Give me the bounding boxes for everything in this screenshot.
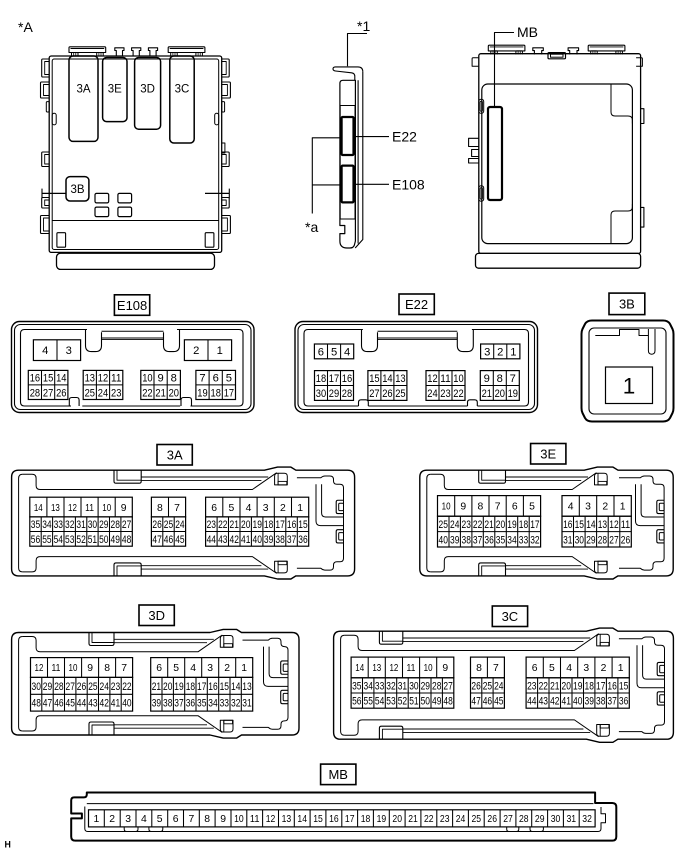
svg-text:41: 41 (111, 698, 120, 710)
svg-text:13: 13 (395, 373, 405, 385)
svg-text:39: 39 (450, 534, 459, 546)
svg-text:7: 7 (510, 373, 516, 385)
svg-text:39: 39 (152, 698, 161, 710)
svg-text:5: 5 (331, 346, 337, 358)
svg-text:17: 17 (224, 387, 234, 399)
svg-text:53: 53 (386, 696, 395, 708)
svg-text:4: 4 (246, 503, 252, 514)
svg-text:36: 36 (484, 534, 493, 546)
svg-text:5: 5 (549, 663, 555, 674)
svg-text:36: 36 (619, 696, 628, 708)
svg-text:3B: 3B (619, 297, 635, 312)
svg-text:6: 6 (318, 346, 324, 358)
svg-text:40: 40 (439, 534, 448, 546)
svg-text:28: 28 (342, 388, 352, 400)
svg-text:3: 3 (263, 503, 269, 514)
svg-text:18: 18 (519, 519, 528, 531)
svg-text:19: 19 (507, 519, 516, 531)
svg-text:22: 22 (218, 519, 227, 531)
svg-text:18: 18 (585, 680, 594, 692)
svg-text:MB: MB (517, 24, 538, 40)
svg-text:17: 17 (197, 681, 206, 693)
svg-text:3C: 3C (502, 609, 519, 624)
svg-text:13: 13 (242, 681, 251, 693)
svg-text:5: 5 (529, 502, 535, 513)
svg-text:15: 15 (298, 519, 307, 531)
svg-text:3: 3 (125, 814, 131, 825)
svg-text:30: 30 (316, 388, 326, 400)
svg-text:44: 44 (77, 698, 86, 710)
svg-text:39: 39 (585, 696, 594, 708)
svg-text:45: 45 (494, 696, 503, 708)
svg-text:16: 16 (563, 519, 572, 531)
svg-text:32: 32 (65, 519, 74, 531)
svg-text:8: 8 (204, 814, 210, 825)
svg-text:2: 2 (224, 663, 230, 674)
svg-text:8: 8 (478, 502, 484, 513)
svg-text:55: 55 (42, 534, 51, 546)
svg-text:*A: *A (18, 19, 33, 35)
svg-text:13: 13 (85, 373, 95, 385)
svg-text:5: 5 (157, 814, 163, 825)
svg-text:47: 47 (471, 696, 480, 708)
svg-text:20: 20 (163, 681, 172, 693)
svg-text:17: 17 (275, 519, 284, 531)
svg-text:54: 54 (54, 534, 63, 546)
svg-text:38: 38 (163, 698, 172, 710)
svg-text:27: 27 (609, 534, 618, 546)
svg-text:22: 22 (424, 814, 434, 825)
svg-text:21: 21 (230, 519, 239, 531)
svg-text:18: 18 (211, 387, 221, 399)
svg-text:1: 1 (510, 346, 516, 358)
svg-text:42: 42 (100, 698, 109, 710)
svg-text:50: 50 (99, 534, 108, 546)
svg-text:24: 24 (456, 814, 466, 825)
svg-text:21: 21 (550, 680, 559, 692)
svg-text:46: 46 (164, 534, 173, 546)
svg-text:10: 10 (453, 373, 463, 385)
svg-text:3B: 3B (70, 184, 84, 196)
svg-text:3: 3 (585, 502, 591, 513)
svg-text:20: 20 (496, 519, 505, 531)
svg-text:6: 6 (532, 663, 538, 674)
svg-text:10: 10 (442, 502, 451, 513)
svg-text:18: 18 (316, 373, 326, 385)
svg-text:12: 12 (266, 814, 276, 825)
svg-text:2: 2 (497, 346, 503, 358)
svg-text:12: 12 (98, 373, 108, 385)
svg-text:7: 7 (189, 814, 195, 825)
svg-text:13: 13 (282, 814, 292, 825)
svg-text:10: 10 (424, 663, 433, 674)
svg-text:44: 44 (207, 534, 216, 546)
svg-text:2: 2 (280, 503, 286, 514)
svg-text:24: 24 (98, 387, 108, 399)
svg-text:29: 29 (586, 534, 595, 546)
svg-text:17: 17 (329, 373, 339, 385)
svg-text:38: 38 (596, 696, 605, 708)
svg-text:3D: 3D (148, 608, 165, 623)
svg-text:3E: 3E (108, 83, 122, 95)
svg-text:38: 38 (275, 534, 284, 546)
svg-text:10: 10 (142, 373, 152, 385)
svg-text:24: 24 (100, 681, 109, 693)
svg-text:8: 8 (104, 663, 110, 674)
svg-text:E22: E22 (392, 129, 417, 145)
svg-text:21: 21 (484, 519, 493, 531)
svg-text:33: 33 (519, 534, 528, 546)
svg-text:45: 45 (66, 698, 75, 710)
svg-text:45: 45 (175, 534, 184, 546)
svg-text:5: 5 (229, 503, 235, 514)
svg-text:28: 28 (30, 387, 40, 399)
svg-text:7: 7 (495, 502, 501, 513)
svg-text:26: 26 (471, 680, 480, 692)
svg-text:30: 30 (551, 814, 561, 825)
svg-text:56: 56 (352, 696, 361, 708)
svg-text:3A: 3A (167, 447, 183, 462)
svg-text:13: 13 (598, 519, 607, 531)
svg-text:29: 29 (421, 680, 430, 692)
svg-text:24: 24 (427, 388, 437, 400)
svg-text:3D: 3D (140, 83, 155, 95)
svg-text:46: 46 (483, 696, 492, 708)
svg-text:34: 34 (364, 680, 373, 692)
svg-text:33: 33 (220, 698, 229, 710)
svg-text:40: 40 (573, 696, 582, 708)
svg-text:33: 33 (375, 680, 384, 692)
svg-text:39: 39 (264, 534, 273, 546)
svg-text:34: 34 (507, 534, 516, 546)
svg-text:1: 1 (623, 374, 636, 399)
svg-text:7: 7 (493, 663, 499, 674)
svg-text:35: 35 (31, 519, 40, 531)
svg-text:43: 43 (88, 698, 97, 710)
svg-text:41: 41 (241, 534, 250, 546)
svg-text:3: 3 (484, 346, 490, 358)
svg-text:34: 34 (42, 519, 51, 531)
svg-text:12: 12 (609, 519, 618, 531)
svg-text:27: 27 (369, 388, 379, 400)
svg-text:26: 26 (382, 388, 392, 400)
svg-text:32: 32 (530, 534, 539, 546)
svg-text:43: 43 (539, 696, 548, 708)
svg-text:42: 42 (230, 534, 239, 546)
svg-text:30: 30 (88, 519, 97, 531)
svg-text:21: 21 (155, 387, 165, 399)
svg-text:28: 28 (54, 681, 63, 693)
svg-text:4: 4 (568, 502, 574, 513)
svg-text:27: 27 (43, 387, 53, 399)
svg-text:23: 23 (111, 387, 121, 399)
svg-text:28: 28 (519, 814, 529, 825)
svg-text:31: 31 (563, 534, 572, 546)
svg-text:53: 53 (65, 534, 74, 546)
svg-text:18: 18 (186, 681, 195, 693)
svg-text:E108: E108 (392, 176, 425, 192)
svg-text:13: 13 (51, 503, 60, 514)
svg-text:3: 3 (583, 663, 589, 674)
svg-text:24: 24 (494, 680, 503, 692)
svg-text:28: 28 (598, 534, 607, 546)
svg-text:25: 25 (472, 814, 482, 825)
svg-text:26: 26 (621, 534, 630, 546)
svg-text:H: H (5, 840, 11, 850)
svg-text:40: 40 (122, 698, 131, 710)
svg-text:8: 8 (171, 373, 177, 385)
svg-text:9: 9 (157, 373, 163, 385)
svg-text:19: 19 (508, 388, 518, 400)
svg-text:27: 27 (443, 680, 452, 692)
svg-text:2: 2 (193, 345, 199, 357)
svg-text:9: 9 (87, 663, 93, 674)
svg-text:37: 37 (607, 696, 616, 708)
svg-text:18: 18 (264, 519, 273, 531)
svg-text:18: 18 (361, 814, 371, 825)
svg-text:3C: 3C (175, 83, 190, 95)
svg-text:5: 5 (226, 373, 232, 385)
svg-text:41: 41 (562, 696, 571, 708)
svg-text:17: 17 (530, 519, 539, 531)
svg-text:37: 37 (287, 534, 296, 546)
svg-text:32: 32 (582, 814, 592, 825)
svg-text:25: 25 (395, 388, 405, 400)
svg-text:23: 23 (440, 388, 450, 400)
svg-text:14: 14 (382, 373, 392, 385)
svg-text:12: 12 (427, 373, 437, 385)
svg-text:12: 12 (35, 663, 44, 674)
svg-text:27: 27 (66, 681, 75, 693)
svg-text:22: 22 (539, 680, 548, 692)
svg-text:3A: 3A (76, 83, 90, 95)
svg-text:1: 1 (241, 663, 247, 674)
svg-text:11: 11 (52, 663, 61, 674)
svg-text:29: 29 (329, 388, 339, 400)
svg-text:20: 20 (562, 680, 571, 692)
svg-text:16: 16 (342, 373, 352, 385)
svg-text:40: 40 (253, 534, 262, 546)
svg-text:13: 13 (372, 663, 381, 674)
svg-text:6: 6 (512, 502, 518, 513)
svg-text:31: 31 (567, 814, 577, 825)
svg-text:30: 30 (32, 681, 41, 693)
svg-text:8: 8 (157, 503, 163, 514)
svg-text:50: 50 (421, 696, 430, 708)
svg-text:15: 15 (619, 680, 628, 692)
svg-text:16: 16 (287, 519, 296, 531)
svg-text:34: 34 (208, 698, 217, 710)
svg-text:44: 44 (527, 696, 536, 708)
svg-text:47: 47 (152, 534, 161, 546)
svg-text:24: 24 (450, 519, 459, 531)
svg-text:25: 25 (164, 519, 173, 531)
svg-text:19: 19 (197, 387, 207, 399)
svg-text:9: 9 (442, 663, 448, 674)
svg-text:31: 31 (242, 698, 251, 710)
svg-text:54: 54 (375, 696, 384, 708)
svg-text:26: 26 (56, 387, 66, 399)
svg-text:7: 7 (199, 373, 205, 385)
svg-text:37: 37 (174, 698, 183, 710)
svg-text:51: 51 (409, 696, 418, 708)
svg-text:27: 27 (503, 814, 513, 825)
svg-text:29: 29 (535, 814, 545, 825)
svg-text:17: 17 (345, 814, 355, 825)
svg-text:16: 16 (30, 373, 40, 385)
svg-text:32: 32 (386, 680, 395, 692)
svg-text:2: 2 (601, 663, 607, 674)
svg-text:4: 4 (566, 663, 572, 674)
svg-text:31: 31 (76, 519, 85, 531)
svg-text:20: 20 (495, 388, 505, 400)
svg-text:10: 10 (69, 663, 78, 674)
svg-text:9: 9 (220, 814, 226, 825)
svg-text:9: 9 (121, 503, 127, 514)
svg-text:E22: E22 (405, 297, 428, 312)
svg-text:23: 23 (527, 680, 536, 692)
svg-text:12: 12 (68, 503, 77, 514)
svg-text:MB: MB (328, 767, 348, 782)
svg-text:28: 28 (432, 680, 441, 692)
svg-text:30: 30 (575, 534, 584, 546)
svg-text:5: 5 (173, 663, 179, 674)
svg-text:1: 1 (620, 502, 626, 513)
svg-text:52: 52 (76, 534, 85, 546)
svg-text:2: 2 (109, 814, 115, 825)
svg-text:*a: *a (305, 219, 318, 235)
svg-text:30: 30 (409, 680, 418, 692)
svg-text:4: 4 (141, 814, 147, 825)
svg-text:31: 31 (398, 680, 407, 692)
svg-text:49: 49 (432, 696, 441, 708)
svg-text:14: 14 (297, 814, 307, 825)
svg-text:11: 11 (621, 519, 630, 531)
svg-text:15: 15 (369, 373, 379, 385)
svg-text:6: 6 (211, 503, 217, 514)
svg-text:25: 25 (483, 680, 492, 692)
svg-text:1: 1 (217, 345, 223, 357)
svg-text:6: 6 (173, 814, 179, 825)
svg-text:25: 25 (439, 519, 448, 531)
svg-text:6: 6 (156, 663, 162, 674)
svg-text:38: 38 (462, 534, 471, 546)
svg-text:8: 8 (497, 373, 503, 385)
svg-text:3: 3 (207, 663, 213, 674)
svg-text:10: 10 (234, 814, 244, 825)
svg-text:6: 6 (213, 373, 219, 385)
svg-text:46: 46 (54, 698, 63, 710)
svg-text:47: 47 (43, 698, 52, 710)
svg-text:23: 23 (207, 519, 216, 531)
svg-text:19: 19 (174, 681, 183, 693)
svg-text:22: 22 (122, 681, 131, 693)
svg-text:48: 48 (443, 696, 452, 708)
svg-text:16: 16 (607, 680, 616, 692)
svg-text:56: 56 (31, 534, 40, 546)
svg-text:15: 15 (575, 519, 584, 531)
svg-text:16: 16 (208, 681, 217, 693)
svg-text:*1: *1 (357, 18, 370, 34)
svg-text:37: 37 (473, 534, 482, 546)
svg-text:2: 2 (602, 502, 608, 513)
svg-text:14: 14 (231, 681, 240, 693)
svg-text:4: 4 (344, 346, 350, 358)
svg-text:1: 1 (94, 814, 100, 825)
svg-text:26: 26 (77, 681, 86, 693)
svg-text:7: 7 (174, 503, 180, 514)
svg-text:35: 35 (352, 680, 361, 692)
svg-text:9: 9 (460, 502, 466, 513)
svg-text:49: 49 (111, 534, 120, 546)
svg-text:11: 11 (85, 503, 94, 514)
svg-text:14: 14 (355, 663, 364, 674)
svg-text:23: 23 (440, 814, 450, 825)
svg-text:24: 24 (175, 519, 184, 531)
svg-text:42: 42 (550, 696, 559, 708)
svg-text:11: 11 (111, 373, 121, 385)
svg-text:21: 21 (482, 388, 492, 400)
svg-text:25: 25 (85, 387, 95, 399)
svg-text:26: 26 (487, 814, 497, 825)
svg-text:14: 14 (34, 503, 43, 514)
svg-text:43: 43 (218, 534, 227, 546)
svg-text:11: 11 (407, 663, 416, 674)
svg-text:20: 20 (241, 519, 250, 531)
svg-text:15: 15 (313, 814, 323, 825)
svg-text:21: 21 (152, 681, 161, 693)
svg-text:35: 35 (496, 534, 505, 546)
svg-text:3E: 3E (540, 446, 556, 461)
svg-text:4: 4 (190, 663, 196, 674)
svg-text:11: 11 (440, 373, 450, 385)
svg-text:23: 23 (462, 519, 471, 531)
svg-text:35: 35 (197, 698, 206, 710)
svg-text:36: 36 (186, 698, 195, 710)
svg-text:29: 29 (99, 519, 108, 531)
svg-text:23: 23 (111, 681, 120, 693)
svg-text:15: 15 (43, 373, 53, 385)
svg-text:22: 22 (453, 388, 463, 400)
svg-text:7: 7 (121, 663, 127, 674)
svg-text:22: 22 (473, 519, 482, 531)
svg-text:36: 36 (298, 534, 307, 546)
svg-text:8: 8 (476, 663, 482, 674)
svg-text:32: 32 (231, 698, 240, 710)
svg-text:20: 20 (169, 387, 179, 399)
svg-text:4: 4 (42, 345, 48, 357)
svg-text:3: 3 (66, 345, 72, 357)
svg-text:28: 28 (111, 519, 120, 531)
svg-text:51: 51 (88, 534, 97, 546)
svg-text:11: 11 (250, 814, 260, 825)
svg-text:12: 12 (389, 663, 398, 674)
svg-text:19: 19 (573, 680, 582, 692)
svg-text:29: 29 (43, 681, 52, 693)
svg-text:1: 1 (297, 503, 303, 514)
svg-text:9: 9 (484, 373, 490, 385)
svg-text:48: 48 (32, 698, 41, 710)
svg-text:19: 19 (253, 519, 262, 531)
svg-text:10: 10 (102, 503, 111, 514)
svg-text:19: 19 (377, 814, 387, 825)
svg-text:55: 55 (364, 696, 373, 708)
svg-text:1: 1 (618, 663, 624, 674)
svg-text:20: 20 (392, 814, 402, 825)
svg-text:21: 21 (408, 814, 418, 825)
svg-text:33: 33 (54, 519, 63, 531)
svg-text:E108: E108 (117, 298, 147, 313)
